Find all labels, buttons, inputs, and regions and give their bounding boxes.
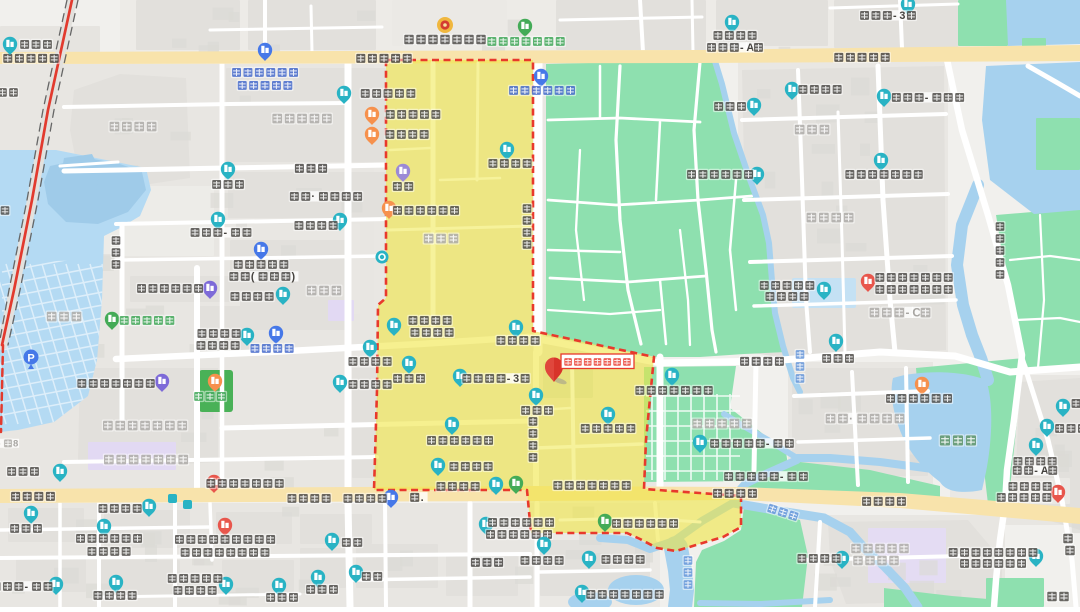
svg-text:-: - — [766, 438, 770, 450]
svg-text:-: - — [780, 471, 784, 483]
svg-text:8: 8 — [13, 439, 18, 450]
svg-text:-: - — [0, 439, 1, 450]
svg-text:-: - — [893, 10, 897, 22]
svg-text:-: - — [925, 92, 929, 104]
svg-text:(: ( — [251, 271, 255, 283]
svg-text:P: P — [27, 353, 34, 365]
svg-text:-: - — [507, 373, 511, 385]
svg-text:-: - — [740, 42, 744, 54]
svg-text:3: 3 — [513, 373, 519, 385]
svg-text:3: 3 — [899, 10, 905, 22]
svg-text:-: - — [224, 227, 228, 239]
svg-text:): ) — [292, 271, 296, 283]
svg-text:·: · — [849, 412, 853, 426]
svg-text:-: - — [906, 306, 910, 320]
svg-text:-: - — [1034, 465, 1038, 477]
svg-text:·: · — [311, 191, 315, 203]
svg-text:-: - — [25, 581, 29, 593]
svg-text:.: . — [421, 492, 424, 504]
